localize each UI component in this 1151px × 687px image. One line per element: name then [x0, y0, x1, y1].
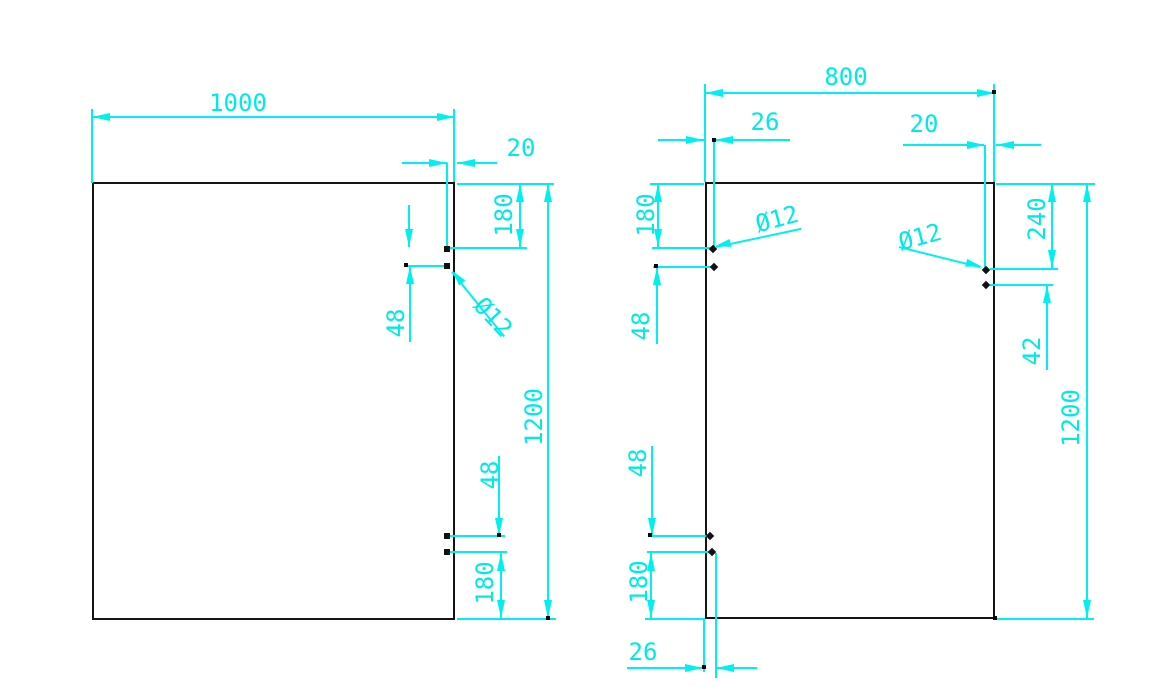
- arrowhead-icon: [406, 266, 414, 284]
- arrowhead-icon: [685, 664, 703, 672]
- extension-line: [446, 163, 448, 247]
- dim-label-left-top-spacing: 48: [384, 309, 408, 338]
- dim-label-right-right-spacing: 42: [1020, 337, 1044, 366]
- extension-line: [990, 284, 1053, 286]
- arrowhead-icon: [1083, 184, 1091, 202]
- dim-label-left-bottom-spacing: 48: [478, 461, 502, 490]
- extension-line: [457, 183, 554, 185]
- dim-label-left-height: 1200: [522, 388, 546, 446]
- dim-label-right-left-top-spacing: 48: [629, 312, 653, 341]
- dim-label-right-left-bottom-spacing: 48: [626, 449, 650, 478]
- hole-mark: [444, 263, 450, 269]
- extension-line: [448, 247, 527, 249]
- arrowhead-icon: [405, 229, 413, 247]
- arrowhead-icon: [653, 267, 661, 285]
- arrowhead-icon: [1083, 600, 1091, 618]
- extension-line: [713, 140, 715, 248]
- dim-label-right-left-top-offset: 180: [634, 193, 658, 236]
- extension-line: [653, 266, 711, 268]
- arrowhead-icon: [705, 89, 723, 97]
- extension-line: [647, 551, 713, 553]
- extension-line: [993, 84, 995, 182]
- dim-label-right-bottom-offset: 26: [629, 640, 658, 664]
- extension-dot: [712, 138, 716, 142]
- arrowhead-icon: [715, 136, 733, 144]
- dim-label-right-left-bottom-offset: 180: [627, 560, 651, 603]
- hole-mark: [444, 533, 450, 539]
- arrowhead-icon: [1048, 250, 1056, 268]
- arrowhead-icon: [457, 159, 475, 167]
- hole-mark: [444, 246, 450, 252]
- arrowhead-icon: [429, 159, 447, 167]
- extension-dot: [546, 616, 550, 620]
- dim-label-left-width: 1000: [209, 91, 267, 115]
- extension-line: [405, 265, 446, 267]
- arrowhead-icon: [686, 136, 704, 144]
- extension-line: [648, 535, 711, 537]
- extension-line: [448, 551, 507, 553]
- arrowhead-icon: [437, 113, 455, 121]
- dim-label-right-right-offset: 20: [910, 112, 939, 136]
- extension-dot: [702, 665, 706, 669]
- arrowhead-icon: [716, 664, 734, 672]
- extension-dot: [992, 90, 996, 94]
- extension-line: [652, 247, 711, 249]
- dim-label-right-height: 1200: [1059, 389, 1083, 447]
- arrowhead-icon: [544, 184, 552, 202]
- extension-dot: [497, 533, 501, 537]
- arrowhead-icon: [996, 141, 1014, 149]
- dim-label-left-bottom-offset: 180: [473, 561, 497, 604]
- extension-dot: [648, 533, 652, 537]
- arrowhead-icon: [967, 141, 985, 149]
- extension-line: [715, 553, 717, 678]
- right-panel-outline: [705, 182, 995, 619]
- extension-line: [996, 183, 1095, 185]
- extension-line: [457, 618, 556, 620]
- left-panel-outline: [92, 182, 455, 620]
- hole-mark: [444, 549, 450, 555]
- extension-line: [645, 618, 705, 620]
- extension-dot: [404, 263, 408, 267]
- cad-drawing-canvas: 1000 20 180 48 Ø12 1200: [0, 0, 1151, 687]
- arrowhead-icon: [1043, 285, 1051, 303]
- dim-label-right-right-top-offset: 240: [1025, 197, 1049, 240]
- dimension-line: [92, 116, 455, 118]
- extension-dot: [993, 616, 997, 620]
- dimension-line: [1086, 184, 1088, 618]
- extension-line: [984, 145, 986, 268]
- extension-dot: [654, 264, 658, 268]
- dimension-line: [705, 92, 995, 94]
- extension-line: [990, 268, 1058, 270]
- dim-label-left-top-offset: 180: [492, 193, 516, 236]
- arrowhead-icon: [92, 113, 110, 121]
- extension-line: [997, 618, 1094, 620]
- extension-line: [704, 84, 706, 182]
- dim-label-right-width: 800: [824, 65, 867, 89]
- dim-label-right-left-offset: 26: [751, 110, 780, 134]
- dim-label-left-edge-offset: 20: [507, 136, 536, 160]
